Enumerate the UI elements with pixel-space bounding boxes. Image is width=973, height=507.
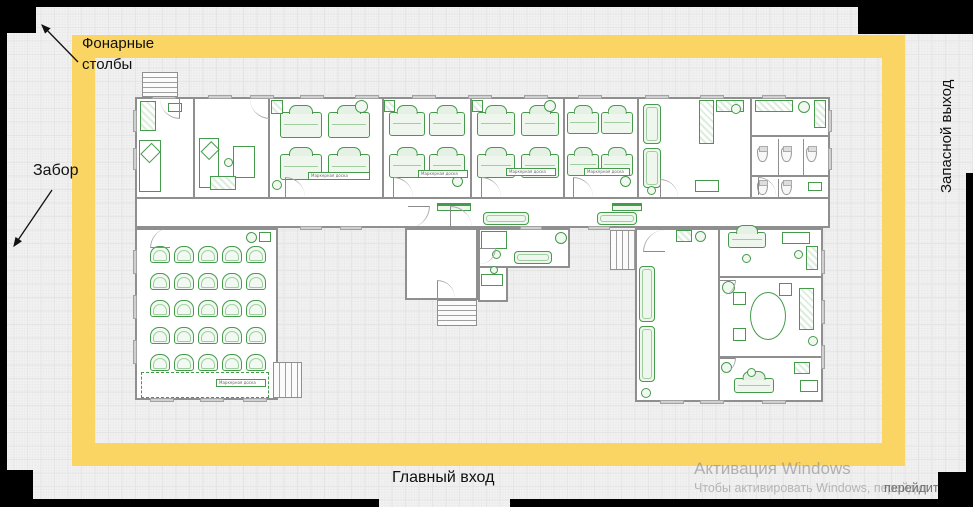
window: [700, 95, 724, 99]
interior-wall: [637, 97, 639, 197]
round-furniture: [647, 186, 656, 195]
classroom-desk: [477, 112, 515, 136]
auditorium-chair: [222, 327, 242, 344]
sofa: [643, 148, 661, 188]
classroom-desk: [601, 112, 633, 134]
boundary-bar-right: [966, 173, 973, 507]
table: [779, 283, 792, 296]
window: [412, 95, 436, 99]
auditorium-chair: [198, 354, 218, 371]
table: [695, 180, 719, 192]
interior-wall: [135, 197, 830, 199]
cabinet: [676, 230, 692, 242]
interior-wall: [382, 97, 384, 197]
window: [660, 400, 684, 404]
table: [800, 380, 818, 392]
window: [300, 95, 324, 99]
auditorium-chair: [246, 300, 266, 317]
auditorium-chair: [150, 246, 170, 263]
boundary-bar-bottom-left: [0, 499, 379, 507]
classroom-desk: [389, 112, 425, 136]
meeting-table: [750, 292, 786, 340]
auditorium-chair: [150, 327, 170, 344]
bed: [139, 140, 161, 192]
lamp-posts-label-line1: Фонарные: [82, 33, 154, 54]
building-plan: Маркерная доскаМаркерная доскаМаркерная …: [0, 0, 973, 507]
round-furniture: [224, 158, 233, 167]
sofa: [639, 266, 655, 322]
cabinet: [384, 100, 395, 112]
round-furniture: [490, 266, 498, 274]
interior-wall: [750, 97, 752, 197]
staircase: [273, 362, 302, 398]
staircase: [142, 72, 178, 97]
window: [821, 345, 825, 369]
round-furniture: [742, 254, 751, 263]
lamp-posts-label-line2: столбы: [82, 54, 154, 75]
auditorium-chair: [174, 300, 194, 317]
lamp-post-block-top-right: [858, 0, 973, 34]
auditorium-chair: [246, 354, 266, 371]
auditorium-chair: [198, 246, 218, 263]
table: [481, 274, 503, 286]
round-furniture: [794, 250, 803, 259]
cabinet: [699, 100, 714, 144]
window: [524, 95, 548, 99]
cabinet: [755, 100, 793, 112]
auditorium-chair: [174, 354, 194, 371]
window: [340, 226, 362, 230]
cabinet: [806, 246, 818, 270]
material-label: Маркерная доска: [308, 172, 370, 180]
window: [200, 398, 224, 402]
table: [808, 182, 822, 191]
table: [733, 328, 746, 341]
table: [233, 146, 255, 178]
window: [243, 398, 267, 402]
table: [481, 231, 507, 249]
auditorium-chair: [198, 300, 218, 317]
classroom-desk: [734, 378, 774, 393]
window: [588, 226, 610, 230]
floor-plan-screenshot: Маркерная доскаМаркерная доскаМаркерная …: [0, 0, 973, 507]
interior-wall: [563, 97, 565, 197]
material-label: Маркерная доска: [216, 379, 266, 387]
sofa: [639, 326, 655, 382]
material-label: Маркерная доска: [584, 168, 630, 176]
auditorium-chair: [174, 246, 194, 263]
auditorium-chair: [246, 246, 266, 263]
cabinet: [472, 100, 483, 112]
cabinet: [271, 100, 283, 114]
cabinet: [140, 101, 156, 131]
window: [468, 95, 492, 99]
sofa: [643, 104, 661, 144]
window: [133, 250, 137, 274]
window: [133, 340, 137, 364]
round-furniture: [555, 232, 567, 244]
auditorium-chair: [222, 354, 242, 371]
window: [150, 398, 174, 402]
sofa: [514, 251, 552, 264]
interior-wall: [752, 175, 830, 177]
interior-wall: [193, 97, 195, 197]
interior-wall: [778, 179, 779, 197]
interior-wall: [803, 139, 804, 175]
window: [133, 110, 137, 132]
interior-wall: [718, 276, 823, 278]
material-label: Маркерная доска: [418, 170, 468, 178]
windows-activation-watermark-overlap: перейдит: [884, 481, 939, 495]
round-furniture: [272, 180, 282, 190]
round-furniture: [808, 336, 818, 346]
cabinet: [799, 288, 814, 330]
bench: [612, 203, 642, 211]
classroom-desk: [521, 112, 559, 136]
interior-wall: [470, 97, 472, 197]
window: [762, 400, 786, 404]
window: [208, 95, 232, 99]
lamp-posts-label: Фонарные столбы: [82, 33, 154, 75]
window: [133, 148, 137, 170]
sofa: [483, 212, 529, 225]
window: [645, 95, 669, 99]
auditorium-chair: [150, 354, 170, 371]
round-furniture: [641, 388, 651, 398]
fence-label: Забор: [33, 162, 79, 180]
staircase: [610, 230, 636, 270]
cabinet: [794, 362, 810, 374]
auditorium-chair: [150, 273, 170, 290]
window: [821, 300, 825, 324]
round-furniture: [620, 176, 631, 187]
window: [828, 148, 832, 170]
boundary-bar-left: [0, 7, 7, 470]
emergency-exit-label: Запасной выход: [938, 35, 962, 193]
material-label: Маркерная доска: [506, 168, 556, 176]
auditorium-chair: [222, 273, 242, 290]
window: [355, 95, 379, 99]
auditorium-chair: [174, 273, 194, 290]
window: [578, 95, 602, 99]
auditorium-chair: [246, 273, 266, 290]
window: [700, 400, 724, 404]
auditorium-chair: [222, 246, 242, 263]
auditorium-chair: [198, 327, 218, 344]
windows-activation-watermark-title: Активация Windows: [694, 459, 851, 479]
auditorium-chair: [174, 327, 194, 344]
table: [733, 292, 746, 305]
round-furniture: [544, 100, 556, 112]
table: [259, 232, 271, 242]
round-furniture: [798, 101, 810, 113]
staircase: [437, 300, 477, 326]
auditorium-chair: [246, 327, 266, 344]
window: [520, 226, 542, 230]
lamp-post-block-bottom-left: [0, 470, 33, 500]
classroom-desk: [728, 232, 766, 248]
cabinet: [210, 176, 236, 190]
round-furniture: [355, 100, 368, 113]
auditorium-chair: [222, 300, 242, 317]
window: [821, 250, 825, 274]
table: [782, 232, 810, 244]
window: [828, 110, 832, 132]
round-furniture: [695, 231, 706, 242]
auditorium-chair: [150, 300, 170, 317]
interior-wall: [718, 228, 720, 400]
classroom-desk: [328, 112, 370, 138]
classroom-desk: [567, 112, 599, 134]
boundary-bar-bottom-right: [510, 499, 973, 507]
classroom-desk: [429, 112, 465, 136]
main-entrance-label: Главный вход: [392, 469, 494, 487]
sofa: [597, 212, 637, 225]
interior-wall: [778, 139, 779, 175]
round-furniture: [731, 104, 741, 114]
window: [762, 95, 786, 99]
interior-wall: [752, 135, 830, 137]
round-furniture: [246, 232, 257, 243]
window: [300, 226, 322, 230]
round-furniture: [747, 368, 756, 377]
boundary-bar-top: [0, 0, 950, 7]
classroom-desk: [280, 112, 322, 138]
cabinet: [814, 100, 826, 128]
auditorium-chair: [198, 273, 218, 290]
window: [133, 295, 137, 319]
